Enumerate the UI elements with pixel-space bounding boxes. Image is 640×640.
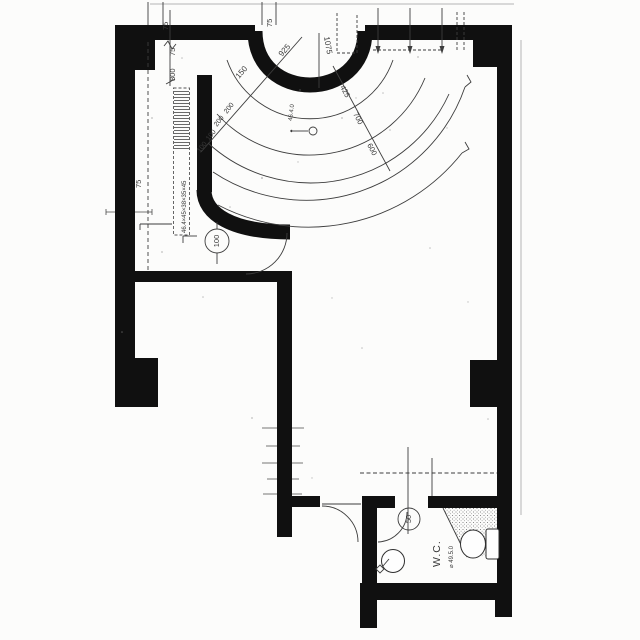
room-label-wc: W.C. <box>431 540 443 567</box>
dim-label: 75 <box>265 19 274 27</box>
annotation-label: 46.4×45×38×35×45 <box>182 180 188 233</box>
wall-wc-stub-left <box>360 600 377 628</box>
dim-label: 75 <box>168 48 177 56</box>
floor-plan-drawing: 75 75 800 75 75 925 150 1075 200 200 100… <box>0 0 640 640</box>
wall-middle-vertical <box>277 271 292 537</box>
wash-basin <box>376 550 405 574</box>
pier-right <box>470 360 497 407</box>
arc-dim-label: 150 <box>234 64 250 80</box>
arc-dim-label: 200 <box>223 102 236 116</box>
circled-dim-label: 100 <box>212 235 221 248</box>
wall-wc-bottom <box>360 583 512 600</box>
dim-label: 800 <box>168 68 177 81</box>
circled-dim-label: 50 <box>404 515 413 523</box>
wall-wc-stub-right <box>495 600 512 617</box>
dim-label: 75 <box>134 180 143 188</box>
wall-wc-top-right <box>428 496 502 508</box>
circled-dimensions <box>205 222 420 530</box>
door-swing-corridor <box>322 506 358 542</box>
dashed-rectangle <box>337 13 357 53</box>
dim-label: 75 <box>161 22 170 30</box>
wall-middle-horizontal <box>118 271 285 282</box>
arc-dim-label: 925 <box>277 42 293 58</box>
toilet <box>461 529 500 559</box>
wall-right <box>497 25 512 600</box>
arc-dim-label: 700 <box>351 111 365 126</box>
annotation-label: ⌀ 49.5.0 <box>449 545 455 568</box>
wall-left <box>115 25 135 407</box>
door-swing-wc <box>378 512 407 542</box>
arc-dim-label: 1075 <box>322 36 334 56</box>
pier-left <box>115 358 158 407</box>
leader-circle-marker <box>309 127 317 135</box>
wall-stub-door <box>292 496 320 507</box>
wall-crossing-ticks <box>106 209 304 494</box>
annotation-label: 46.4.0 <box>288 103 296 121</box>
arc-dim-label: 600 <box>365 142 379 157</box>
floor-plan-sheet: 75 75 800 75 75 925 150 1075 200 200 100… <box>0 0 640 640</box>
wall-niche-semicircle <box>255 31 365 85</box>
